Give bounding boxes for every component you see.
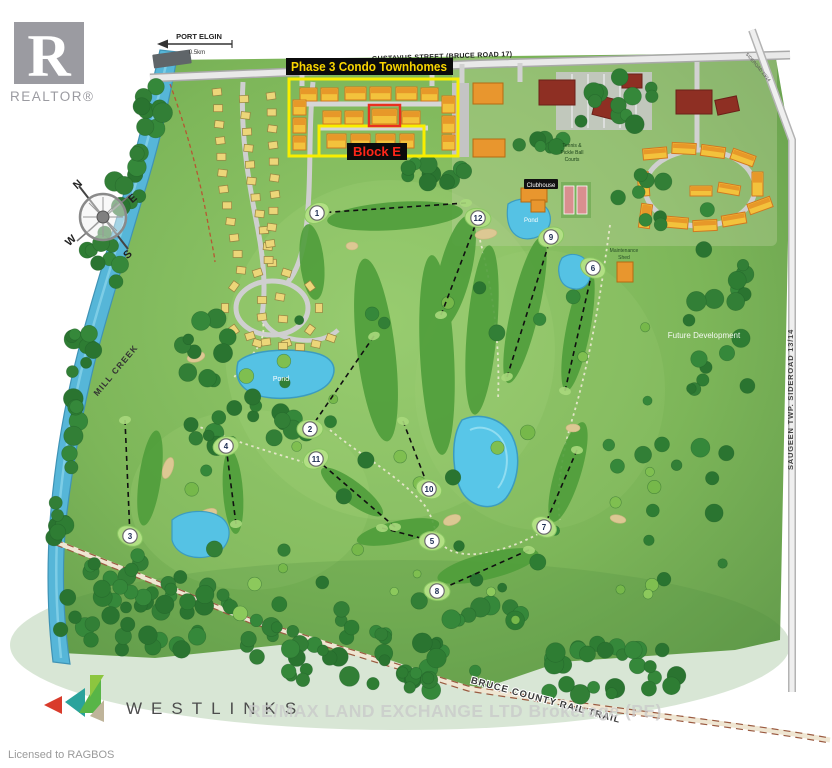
tree-icon: [643, 589, 653, 599]
tree-icon: [121, 617, 135, 631]
tree-icon: [719, 445, 734, 460]
hole-number: 11: [312, 455, 321, 464]
tree-icon: [588, 94, 601, 107]
tree-icon: [634, 168, 647, 181]
house-icon: [316, 304, 323, 313]
tree-icon: [109, 275, 123, 289]
house-icon: [242, 128, 251, 136]
tree-icon: [50, 524, 66, 540]
realtor-logo: R REALTOR®: [10, 22, 94, 104]
townhome-roof: [346, 88, 365, 93]
tree-icon: [189, 431, 203, 445]
tree-icon: [632, 186, 645, 199]
townhome-block: [327, 134, 346, 148]
tree-icon: [84, 633, 99, 648]
tree-icon: [60, 589, 76, 605]
tree-icon: [718, 559, 728, 569]
tree-icon: [655, 437, 670, 452]
tree-icon: [344, 620, 359, 635]
tree-icon: [179, 364, 197, 382]
house-icon: [258, 297, 267, 304]
tree-icon: [85, 617, 100, 632]
tree-icon: [641, 681, 656, 696]
hole-number: 9: [549, 233, 554, 242]
townhome-block: [396, 87, 417, 100]
townhome-block: [664, 216, 689, 229]
tree-icon: [272, 597, 287, 612]
house-icon: [215, 137, 225, 145]
house-icon: [245, 161, 254, 169]
tree-icon: [287, 625, 299, 637]
tree-icon: [610, 459, 624, 473]
port-elgin-label: PORT ELGIN: [176, 32, 222, 41]
tree-icon: [611, 190, 626, 205]
house-icon: [251, 194, 260, 202]
tree-icon: [316, 576, 329, 589]
townhome-roof: [352, 135, 369, 141]
tree-icon: [281, 664, 296, 679]
maintenance-shed-building: [617, 262, 633, 282]
house-icon: [278, 315, 288, 323]
tree-icon: [277, 354, 291, 368]
tree-icon: [131, 549, 145, 563]
tree-icon: [491, 441, 504, 454]
compass-w: W: [63, 232, 79, 248]
tree-icon: [390, 587, 398, 595]
tree-icon: [473, 282, 486, 295]
tree-icon: [644, 535, 655, 546]
hole-number: 2: [308, 425, 313, 434]
house-icon: [311, 340, 321, 349]
tree-icon: [184, 417, 198, 431]
tree-icon: [546, 643, 566, 663]
tree-icon: [295, 316, 304, 325]
tree-icon: [728, 271, 746, 289]
house-icon: [241, 111, 251, 119]
tree-icon: [413, 570, 421, 578]
tree-icon: [691, 351, 708, 368]
tree-icon: [419, 174, 436, 191]
townhome-block: [345, 111, 363, 124]
tree-icon: [535, 141, 546, 152]
tree-icon: [183, 334, 194, 345]
tree-icon: [513, 138, 526, 151]
tree-icon: [102, 607, 120, 625]
townhome-roof: [443, 97, 454, 104]
house-icon: [212, 88, 222, 96]
tree-icon: [606, 688, 617, 699]
house-icon: [267, 109, 276, 116]
house-icon: [275, 293, 285, 301]
tree-icon: [334, 601, 350, 617]
tree-icon: [85, 342, 102, 359]
tree-icon: [456, 163, 472, 179]
townhome-block: [442, 116, 455, 133]
townhome-block: [442, 135, 455, 150]
tree-icon: [511, 616, 520, 625]
tree-icon: [578, 352, 588, 362]
tree-icon: [81, 325, 98, 342]
tree-icon: [442, 610, 461, 629]
tree-icon: [173, 641, 191, 659]
tree-icon: [706, 472, 719, 485]
townhome-block: [690, 186, 712, 196]
tree-icon: [616, 585, 625, 594]
pond-central: [454, 417, 518, 507]
tree-icon: [687, 291, 707, 311]
tree-icon: [244, 389, 260, 405]
tree-icon: [233, 606, 248, 621]
tree-icon: [412, 633, 432, 653]
house-icon: [279, 343, 288, 350]
townhome-roof: [397, 88, 416, 93]
tree-icon: [239, 369, 254, 384]
phase3-label: Phase 3 Condo Townhomes: [291, 60, 447, 74]
tree-icon: [645, 467, 654, 476]
house-icon: [223, 202, 232, 209]
brokerage-watermark: RE/MAX LAND EXCHANGE LTD Brokerage (PE): [248, 701, 662, 721]
tree-icon: [655, 173, 672, 190]
tree-icon: [611, 69, 628, 86]
realtor-wordmark: REALTOR®: [10, 89, 94, 104]
logo-triangle-red-icon: [44, 696, 62, 714]
maintenance-label-1: Maintenance: [610, 248, 639, 254]
west-arrow-icon: [157, 40, 168, 49]
tree-icon: [206, 541, 222, 557]
house-icon: [264, 257, 273, 264]
tree-icon: [559, 676, 575, 692]
tree-icon: [53, 622, 68, 637]
townhome-block: [300, 88, 317, 101]
tee-box: [389, 523, 401, 531]
tree-icon: [375, 628, 388, 641]
tree-icon: [644, 660, 656, 672]
tree-icon: [655, 643, 669, 657]
tennis-label-1: Tennis &: [562, 143, 582, 149]
townhome-block: [421, 88, 438, 101]
tree-icon: [719, 345, 734, 360]
townhome-block: [321, 88, 338, 101]
house-icon: [239, 95, 248, 103]
hole-number: 12: [474, 214, 483, 223]
tree-icon: [278, 544, 291, 557]
tree-icon: [274, 413, 290, 429]
tree-icon: [203, 430, 214, 441]
house-icon: [236, 266, 246, 274]
block-e-label: Block E: [353, 144, 401, 159]
tree-icon: [64, 426, 83, 445]
townhome-roof: [294, 119, 305, 125]
tree-icon: [646, 504, 659, 517]
tree-icon: [217, 589, 229, 601]
house-icon: [218, 169, 228, 177]
hole-number: 1: [315, 209, 320, 218]
tree-icon: [241, 631, 257, 647]
tree-icon: [498, 583, 507, 592]
townhome-roof: [422, 89, 437, 94]
tree-icon: [165, 583, 177, 595]
tree-icon: [648, 480, 661, 493]
tree-icon: [691, 438, 710, 457]
tree-icon: [324, 416, 336, 428]
tree-icon: [69, 611, 82, 624]
tree-icon: [597, 642, 613, 658]
townhome-block: [643, 147, 668, 160]
tree-icon: [192, 311, 211, 330]
tree-icon: [227, 400, 242, 415]
tree-icon: [635, 446, 652, 463]
tree-icon: [470, 573, 483, 586]
tree-icon: [69, 329, 80, 340]
tree-icon: [422, 672, 434, 684]
tree-icon: [454, 541, 465, 552]
tree-icon: [378, 317, 390, 329]
house-icon: [267, 223, 277, 231]
tree-icon: [65, 461, 78, 474]
house-icon: [270, 174, 280, 182]
tree-icon: [266, 430, 282, 446]
house-icon: [265, 240, 275, 248]
tree-icon: [180, 594, 196, 610]
tennis-label-3: Courts: [565, 157, 580, 163]
tree-icon: [737, 259, 749, 271]
tree-icon: [219, 329, 236, 346]
townhome-block: [293, 100, 306, 115]
tree-icon: [49, 496, 62, 509]
tree-icon: [185, 482, 199, 496]
townhome-roof: [371, 88, 390, 93]
tree-icon: [296, 673, 310, 687]
hole-number: 8: [435, 587, 440, 596]
future-development-label: Future Development: [668, 331, 741, 340]
tree-icon: [705, 504, 723, 522]
tree-icon: [520, 425, 535, 440]
hole-number: 4: [224, 442, 229, 451]
tree-icon: [153, 103, 173, 123]
tree-icon: [654, 218, 667, 231]
house-icon: [295, 343, 304, 351]
tree-icon: [700, 203, 714, 217]
tree-icon: [271, 622, 282, 633]
tree-icon: [394, 450, 407, 463]
tree-icon: [489, 325, 505, 341]
townhome-roof: [294, 101, 305, 107]
tree-icon: [88, 558, 101, 571]
tree-icon: [624, 87, 642, 105]
house-icon: [261, 338, 271, 346]
tree-icon: [671, 460, 682, 471]
tree-icon: [629, 657, 645, 673]
house-icon: [267, 125, 277, 133]
tree-icon: [683, 314, 695, 326]
tree-icon: [278, 564, 287, 573]
tree-icon: [139, 626, 158, 645]
tree-icon: [250, 649, 265, 664]
townhome-roof: [691, 187, 711, 191]
tree-icon: [401, 161, 416, 176]
house-icon: [269, 158, 278, 165]
tree-icon: [281, 640, 299, 658]
tree-icon: [125, 563, 138, 576]
hole-number: 7: [542, 523, 547, 532]
licensed-to-text: Licensed to RAGBOS: [8, 749, 114, 761]
townhome-block: [293, 118, 306, 133]
tree-icon: [740, 378, 755, 393]
tree-icon: [339, 666, 359, 686]
tree-icon: [397, 667, 408, 678]
tree-icon: [62, 446, 78, 462]
house-icon: [255, 210, 265, 218]
clubhouse-label: Clubhouse: [527, 183, 556, 189]
tree-icon: [588, 681, 600, 693]
townhome-roof: [324, 112, 340, 117]
tree-icon: [705, 289, 724, 308]
tree-icon: [292, 442, 302, 452]
tree-icon: [639, 213, 652, 226]
tree-icon: [91, 256, 106, 271]
tree-icon: [379, 655, 390, 666]
house-icon: [270, 190, 280, 198]
tree-icon: [696, 242, 712, 258]
tree-icon: [727, 293, 745, 311]
townhome-roof: [322, 89, 337, 94]
tree-icon: [130, 146, 145, 161]
east-road-label: SAUGEEN TWP. SIDEROAD 13/14: [786, 329, 795, 470]
house-icon: [269, 207, 278, 214]
townhome-block: [370, 87, 391, 100]
tree-icon: [81, 357, 92, 368]
realtor-logo-letter: R: [27, 23, 71, 89]
tree-icon: [174, 570, 187, 583]
tree-icon: [212, 411, 226, 425]
tennis-label-2: Pickle Ball: [560, 150, 583, 156]
tree-icon: [201, 465, 212, 476]
tree-icon: [687, 384, 697, 394]
port-elgin-distance: 0.5km: [189, 50, 205, 56]
hole-number: 6: [591, 264, 596, 273]
tree-icon: [66, 366, 78, 378]
tree-icon: [365, 307, 379, 321]
pond-north-label: Pond: [524, 218, 538, 224]
tree-icon: [530, 554, 546, 570]
tree-icon: [445, 470, 461, 486]
house-icon: [217, 153, 226, 160]
house-icon: [244, 144, 254, 152]
house-icon: [229, 234, 239, 242]
tree-icon: [317, 645, 328, 656]
house-icon: [219, 185, 229, 193]
house-icon: [266, 92, 276, 100]
tree-icon: [93, 580, 110, 597]
tree-icon: [625, 641, 643, 659]
townhome-roof: [443, 136, 454, 142]
tree-icon: [566, 290, 580, 304]
hole-number: 5: [430, 537, 435, 546]
tree-icon: [213, 344, 232, 363]
tree-icon: [469, 665, 481, 677]
pond-west-label: Pond: [273, 376, 289, 383]
tree-icon: [51, 509, 63, 521]
house-icon: [214, 120, 224, 128]
tree-icon: [188, 628, 206, 646]
tree-icon: [358, 452, 374, 468]
house-icon: [214, 105, 223, 112]
tree-icon: [137, 118, 154, 135]
tree-icon: [643, 396, 652, 405]
tree-icon: [113, 579, 128, 594]
townhome-block: [693, 219, 718, 231]
tree-icon: [367, 677, 379, 689]
tree-icon: [248, 577, 262, 591]
tree-icon: [250, 614, 263, 627]
townhome-block: [402, 111, 420, 124]
tree-icon: [352, 544, 364, 556]
tree-icon: [641, 323, 650, 332]
tree-icon: [610, 497, 621, 508]
tennis-courts: [561, 182, 591, 218]
tree-icon: [133, 98, 150, 115]
tree-icon: [196, 585, 214, 603]
townhome-block: [372, 109, 397, 124]
townhome-roof: [443, 117, 454, 124]
townhome-block: [672, 142, 697, 154]
tree-icon: [120, 602, 131, 613]
tree-icon: [625, 115, 644, 134]
townhome-roof: [294, 137, 305, 143]
tree-icon: [199, 369, 217, 387]
tree-icon: [248, 411, 259, 422]
tree-icon: [439, 174, 454, 189]
hole-number: 3: [128, 532, 133, 541]
tree-icon: [155, 595, 174, 614]
tree-icon: [336, 489, 352, 505]
house-icon: [247, 177, 257, 185]
tree-icon: [533, 313, 546, 326]
tree-icon: [70, 400, 84, 414]
townhome-block: [323, 111, 341, 124]
townhome-block: [345, 87, 366, 100]
site-map-image: 123456789101112 GUSTAVUS STREET (BRUCE R…: [0, 0, 832, 768]
tree-icon: [486, 587, 495, 596]
townhome-block: [752, 172, 763, 196]
hole-number: 10: [425, 485, 434, 494]
tree-icon: [427, 648, 447, 668]
townhome-roof: [373, 110, 396, 116]
house-icon: [257, 313, 267, 321]
tree-icon: [410, 667, 422, 679]
tree-icon: [657, 572, 671, 586]
townhome-roof: [377, 135, 394, 141]
tree-icon: [419, 155, 438, 174]
tree-icon: [579, 646, 595, 662]
townhome-block: [442, 96, 455, 113]
townhome-roof: [401, 135, 413, 141]
tree-icon: [663, 677, 681, 695]
tree-icon: [575, 115, 587, 127]
townhome-roof: [403, 112, 419, 117]
townhome-block: [293, 136, 306, 150]
townhome-roof: [346, 112, 362, 117]
townhome-roof: [301, 89, 316, 94]
tree-icon: [603, 439, 615, 451]
townhome-roof: [328, 135, 345, 141]
maintenance-label-2: Shed: [618, 255, 630, 261]
house-icon: [233, 251, 242, 258]
townhome-roof: [753, 173, 762, 183]
house-icon: [268, 141, 278, 149]
house-icon: [226, 218, 236, 226]
tree-icon: [646, 90, 659, 103]
